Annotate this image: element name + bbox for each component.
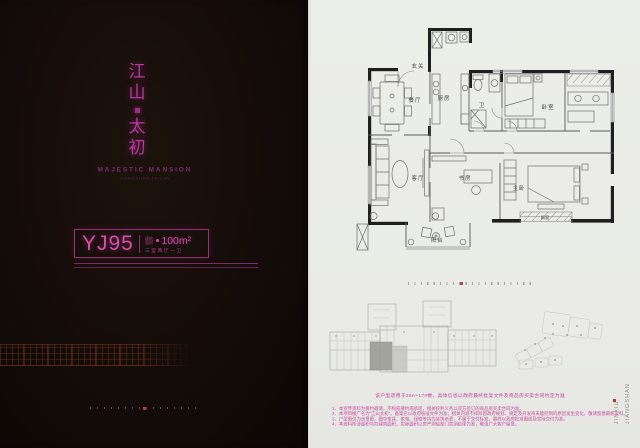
unit-info: 建筑 面积 100m² 三室两厅一卫	[140, 235, 208, 253]
floorplan-drawing: 玄关 餐厅 厨房 卫 卧室 客厅 书房 主卧 阳台 飘窗	[352, 18, 632, 258]
room-label-bay-window: 飘窗	[541, 214, 549, 221]
area-label-line2: 面积	[145, 241, 154, 245]
decor-line	[74, 263, 258, 264]
highlight-note: 该户型适用于26A+17#楼，具体信息以政府最终批复文件及商品房买卖合同约定为准	[375, 392, 565, 399]
adjacent-unit-shade	[392, 346, 407, 372]
dotted-divider	[90, 407, 200, 409]
room-label-balcony: 阳台	[430, 236, 443, 244]
walls	[368, 28, 614, 225]
lattice-pattern	[0, 344, 192, 366]
title-char: 江	[129, 63, 146, 82]
brand-en-title-wrap: MAJESTIC MANSION	[60, 166, 230, 175]
title-char: 太	[129, 118, 146, 137]
seal-icon	[135, 108, 140, 113]
room-label-living: 客厅	[411, 174, 424, 182]
title-char: 初	[129, 139, 146, 158]
siteplan-dots	[524, 323, 596, 365]
doors	[398, 71, 517, 153]
highlight-note-wrap: 该户型适用于26A+17#楼，具体信息以政府最终批复文件及商品房买卖合同约定为准	[330, 392, 610, 403]
room-label-dining: 餐厅	[408, 96, 421, 104]
keyplan-units	[330, 307, 496, 372]
side-vertical-brand: JINXIU JIANGSHAN	[612, 372, 632, 434]
unit-model-label: YJ95	[75, 232, 139, 256]
area-row: 建筑 面积 100m²	[145, 235, 208, 247]
furniture	[357, 32, 608, 250]
brand-en-subtitle: JIANGSHAN TAICHU	[119, 176, 170, 181]
room-label-entry: 玄关	[411, 62, 424, 70]
room-label-bedroom: 卧室	[541, 103, 554, 111]
dotted-divider	[408, 282, 532, 285]
decor-line	[74, 267, 258, 268]
highlighted-unit	[370, 342, 392, 370]
bullet-icon	[156, 239, 160, 243]
room-label-bath: 卫	[479, 102, 486, 109]
vertical-title: 江 山 太 初	[124, 63, 150, 158]
title-char: 山	[129, 84, 146, 103]
disclaimer-lines: 1、本宣传资料为要约邀请，不构成要约或承诺，相关权利义务以双方签订的商品房买卖合…	[332, 406, 607, 427]
brand-en-subtitle-wrap: JIANGSHAN TAICHU	[60, 176, 230, 185]
siteplan-buildings	[515, 311, 604, 369]
keyplan-outline	[330, 301, 496, 372]
left-brand-panel: 江 山 太 初 MAJESTIC MANSION JIANGSHAN TAICH…	[0, 0, 308, 448]
room-label-master: 主卧	[512, 184, 525, 192]
brand-en-title: MAJESTIC MANSION	[98, 166, 193, 173]
keyplan-drawing	[328, 296, 500, 378]
room-label-study: 书房	[458, 174, 471, 182]
room-label-kitchen: 厨房	[437, 94, 450, 102]
red-square-icon	[613, 399, 616, 402]
brochure-page: 江 山 太 初 MAJESTIC MANSION JIANGSHAN TAICH…	[0, 0, 640, 448]
area-label-stack: 建筑 面积	[145, 237, 154, 245]
side-brand-word1: JINXIU	[613, 382, 619, 424]
red-dot-icon	[143, 407, 146, 410]
red-dot-icon	[460, 282, 463, 285]
disclaimer-block: 1、本宣传资料为要约邀请，不构成要约或承诺，相关权利义务以双方签订的商品房买卖合…	[332, 406, 608, 444]
siteplan-drawing	[503, 306, 605, 376]
unit-type-card: YJ95 建筑 面积 100m² 三室两厅一卫	[74, 229, 209, 258]
area-value: 100m²	[161, 235, 191, 247]
room-layout-label: 三室两厅一卫	[145, 247, 183, 251]
side-brand-word2: JIANGSHAN	[624, 382, 630, 424]
disclaimer-line: 4、本资料所涉面积均为建筑面积，实际面积以房产测绘部门实测结果为准，敬请广大客户…	[332, 422, 607, 427]
